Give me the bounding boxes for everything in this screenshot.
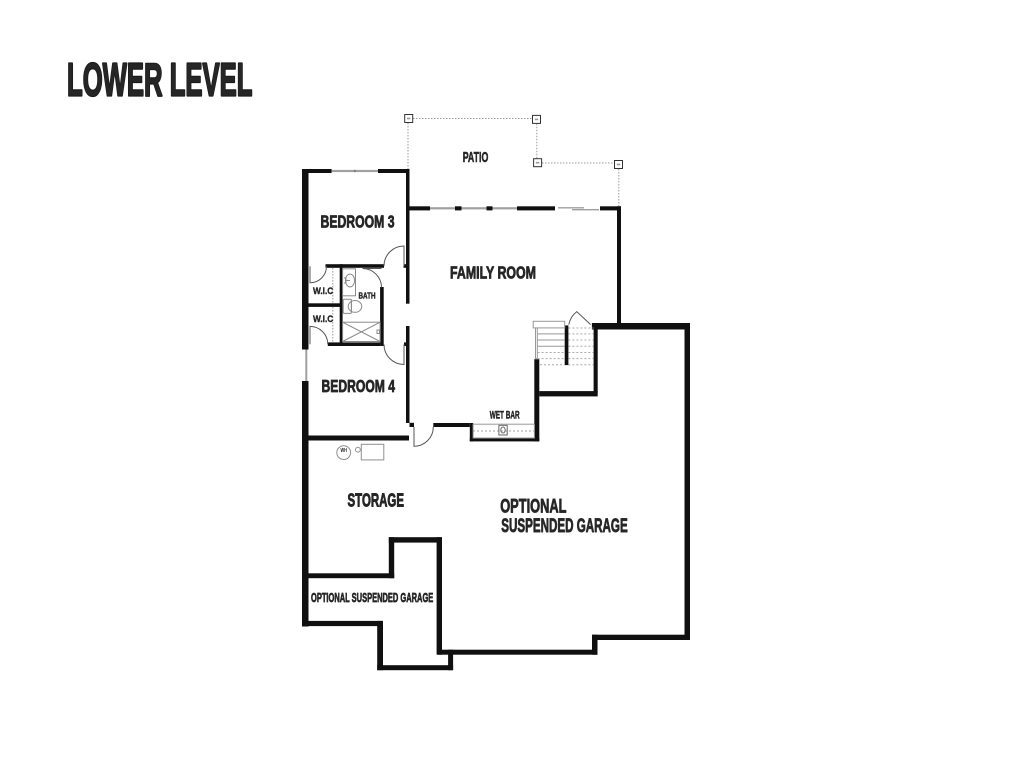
svg-text:FAMILY ROOM: FAMILY ROOM: [450, 263, 536, 283]
svg-text:BEDROOM 4: BEDROOM 4: [322, 376, 396, 396]
svg-text:BEDROOM 3: BEDROOM 3: [321, 212, 395, 232]
svg-text:BATH: BATH: [359, 291, 376, 301]
svg-text:SUSPENDED GARAGE: SUSPENDED GARAGE: [501, 516, 628, 537]
svg-text:PATIO: PATIO: [463, 149, 489, 166]
svg-text:WH: WH: [341, 448, 348, 454]
svg-text:LOWER LEVEL: LOWER LEVEL: [67, 54, 253, 106]
svg-text:WET BAR: WET BAR: [490, 409, 520, 421]
svg-text:OPTIONAL: OPTIONAL: [500, 497, 567, 518]
svg-text:W.I.C: W.I.C: [313, 286, 333, 297]
svg-text:OPTIONAL SUSPENDED GARAGE: OPTIONAL SUSPENDED GARAGE: [311, 590, 433, 605]
svg-text:W.I.C: W.I.C: [313, 314, 333, 325]
svg-text:STORAGE: STORAGE: [348, 490, 405, 511]
